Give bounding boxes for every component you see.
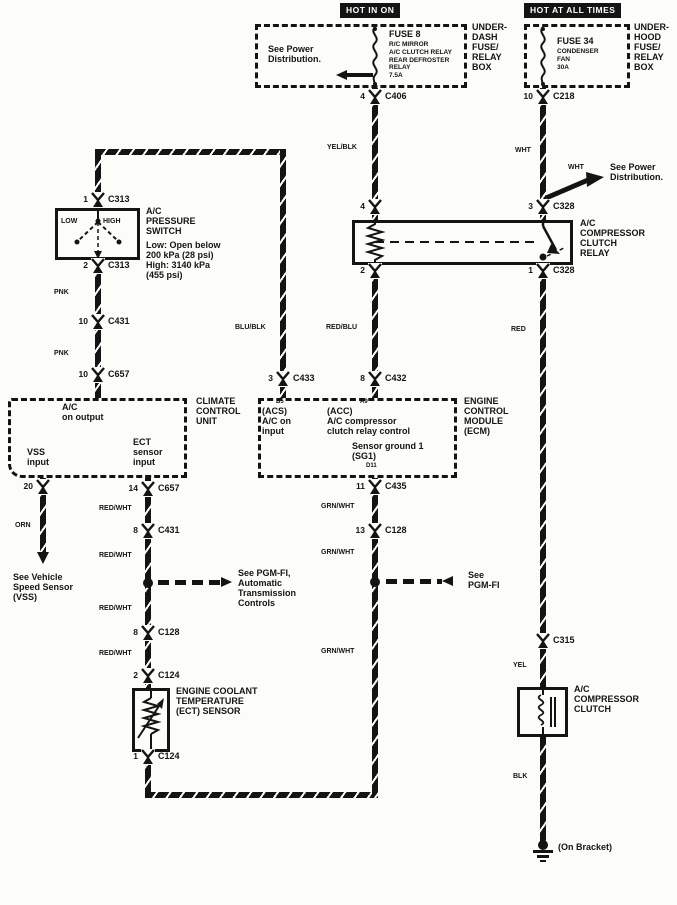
- connector-c432: 8C432: [368, 371, 382, 387]
- wire-label-pnk-2: PNK: [54, 350, 69, 358]
- pgmfi-dash-arrow: [386, 579, 442, 584]
- connector-c431: 8C431: [141, 523, 155, 539]
- connector-pin: 3: [268, 373, 273, 383]
- ect-sensor-internals: [132, 688, 170, 752]
- fuse8-branch-bar: [347, 73, 373, 77]
- wire-label-redblu: RED/BLU: [326, 324, 357, 332]
- pressure-switch-internals: [55, 208, 140, 260]
- wire-label-wht-2: WHT: [568, 164, 584, 172]
- wire-label-grnwht-3: GRN/WHT: [321, 648, 354, 656]
- connector-pin: 11: [356, 481, 365, 491]
- see-pgmfi-note: See PGM-FI: [468, 570, 500, 590]
- wire-yel-segment: [540, 645, 546, 687]
- connector-pin: 13: [356, 525, 365, 535]
- connector-name: C124: [158, 751, 180, 761]
- wire-label-redwht-2: RED/WHT: [99, 552, 132, 560]
- wire-red-column: [540, 263, 546, 647]
- connector-name: C128: [385, 525, 407, 535]
- wire-label-yel: YEL: [513, 662, 527, 670]
- connector-name: C128: [158, 627, 180, 637]
- junction-dot-redwht: [143, 578, 153, 588]
- hot-in-on-tag: HOT IN ON: [340, 3, 400, 18]
- wire-blk-segment: [540, 737, 546, 843]
- pgmfi-at-dash-arrow: [158, 580, 220, 585]
- wire-label-grnwht-2: GRN/WHT: [321, 549, 354, 557]
- vss-arrow: [37, 552, 49, 564]
- fuse34-detail: CONDENSER FAN 30A: [557, 48, 599, 71]
- wire-label-yelblk: YEL/BLK: [327, 144, 357, 152]
- connector-pin: 14: [129, 483, 138, 493]
- ground-dome: [538, 840, 548, 850]
- pressure-switch-label: A/C PRESSURE SWITCH: [146, 206, 196, 236]
- connector-name: C432: [385, 373, 407, 383]
- fuse34-symbol: [536, 27, 550, 87]
- fuse8-title: FUSE 8: [389, 29, 421, 39]
- connector-c435: 11C435: [368, 479, 382, 495]
- wire-label-blublk: BLU/BLK: [235, 324, 266, 332]
- wire-label-redwht-1: RED/WHT: [99, 505, 132, 513]
- relay-internals: [352, 220, 573, 265]
- ccu-ac-on-output-label: A/C on output: [62, 402, 103, 422]
- wht-branch-arrow: [546, 168, 608, 202]
- connector-pin: 1: [528, 265, 533, 275]
- connector-c128: 8C128: [141, 625, 155, 641]
- connector-name: C431: [158, 525, 180, 535]
- wire-top-horizontal: [95, 149, 286, 155]
- compressor-clutch-label: A/C COMPRESSOR CLUTCH: [574, 684, 639, 714]
- ccu-ect-input-label: ECT sensor input: [133, 437, 163, 467]
- connector-pin: 1: [133, 751, 138, 761]
- connector-pin: 2: [133, 670, 138, 680]
- connector-name: C313: [108, 260, 130, 270]
- connector-c328: 1C328: [536, 263, 550, 279]
- see-power-distribution-note-2: See Power Distribution.: [610, 162, 663, 182]
- connector-name: C431: [108, 316, 130, 326]
- connector-c315: C315: [536, 633, 550, 649]
- wire-label-wht-1: WHT: [515, 147, 531, 155]
- connector-name: C406: [385, 91, 407, 101]
- connector-pin: 3: [528, 201, 533, 211]
- ecm-sg-pin: D11: [366, 463, 377, 470]
- connector-name: C433: [293, 373, 315, 383]
- wire-label-redwht-3: RED/WHT: [99, 605, 132, 613]
- wire-bottom-horizontal: [145, 792, 378, 798]
- wire-label-pnk-1: PNK: [54, 289, 69, 297]
- see-power-distribution-note: See Power Distribution.: [268, 44, 321, 64]
- connector-pin: 2: [83, 260, 88, 270]
- pressure-switch-low-label: LOW: [61, 218, 77, 226]
- ground-bar-3: [540, 860, 546, 862]
- connector-name: C218: [553, 91, 575, 101]
- wire-label-grnwht-1: GRN/WHT: [321, 503, 354, 511]
- underhood-box-label: UNDER- HOOD FUSE/ RELAY BOX: [634, 22, 669, 72]
- ecm-label: ENGINE CONTROL MODULE (ECM): [464, 396, 509, 436]
- connector-pin: 20: [24, 481, 33, 491]
- wire-label-redwht-4: RED/WHT: [99, 650, 132, 658]
- connector-name: C315: [553, 635, 575, 645]
- connector-name: C435: [385, 481, 407, 491]
- connector-pin: 4: [360, 91, 365, 101]
- underdash-box-label: UNDER- DASH FUSE/ RELAY BOX: [472, 22, 507, 72]
- connector-c313: 1C313: [91, 192, 105, 208]
- connector-c128: 13C128: [368, 523, 382, 539]
- wire-label-red: RED: [511, 326, 526, 334]
- connector-pin: 10: [524, 91, 533, 101]
- connector-name: C328: [553, 265, 575, 275]
- ccu-label: CLIMATE CONTROL UNIT: [196, 396, 241, 426]
- wire-label-blk: BLK: [513, 773, 527, 781]
- connector-c328: 3C328: [536, 199, 550, 215]
- wire-label-orn: ORN: [15, 522, 31, 530]
- see-vss-note: See Vehicle Speed Sensor (VSS): [13, 572, 73, 602]
- ground-bar-2: [537, 855, 549, 858]
- junction-dot-grnwht: [370, 577, 380, 587]
- connector-name: C328: [553, 201, 575, 211]
- connector-pin: 8: [360, 373, 365, 383]
- wiring-diagram: HOT IN ON HOT AT ALL TIMES See Power Dis…: [0, 0, 677, 905]
- ect-sensor-label: ENGINE COOLANT TEMPERATURE (ECT) SENSOR: [176, 686, 258, 716]
- connector-pin-2: 2: [368, 263, 382, 279]
- connector-c433: 3C433: [276, 371, 290, 387]
- connector-pin: 8: [133, 627, 138, 637]
- connector-pin-4: 4: [368, 199, 382, 215]
- connector-pin: 2: [360, 265, 365, 275]
- connector-pin: 4: [360, 201, 365, 211]
- connector-pin: 10: [79, 369, 88, 379]
- connector-pin: 10: [79, 316, 88, 326]
- connector-c218: 10C218: [536, 89, 550, 105]
- connector-c431: 10C431: [91, 314, 105, 330]
- connector-name: C124: [158, 670, 180, 680]
- connector-c657: 14C657: [141, 481, 155, 497]
- ccu-vss-input-label: VSS input: [27, 447, 49, 467]
- see-pgmfi-at-note: See PGM-FI, Automatic Transmission Contr…: [238, 568, 296, 608]
- connector-c313: 2C313: [91, 258, 105, 274]
- ecm-sensor-ground-label: Sensor ground 1 (SG1): [352, 441, 424, 461]
- ground-bar-1: [533, 850, 553, 853]
- pgmfi-arrowhead: [442, 576, 453, 586]
- on-bracket-label: (On Bracket): [558, 842, 612, 852]
- wire-blublk-column: [280, 149, 286, 398]
- fuse8-symbol: [368, 27, 382, 87]
- relay-label: A/C COMPRESSOR CLUTCH RELAY: [580, 218, 645, 258]
- connector-c657: 10C657: [91, 367, 105, 383]
- ecm-acs-label: (ACS) A/C on input: [262, 406, 291, 436]
- ecm-acc-pin: A9: [360, 399, 368, 406]
- connector-name: C657: [158, 483, 180, 493]
- connector-pin: 8: [133, 525, 138, 535]
- fuse8-branch-arrow: [336, 70, 347, 80]
- connector-c406: 4C406: [368, 89, 382, 105]
- pressure-switch-high-label: HIGH: [103, 218, 121, 226]
- connector-name: C313: [108, 194, 130, 204]
- pgmfi-at-arrowhead: [221, 577, 232, 587]
- hot-at-all-times-tag: HOT AT ALL TIMES: [524, 3, 621, 18]
- fuse8-detail: R/C MIRROR A/C CLUTCH RELAY REAR DEFROST…: [389, 41, 452, 80]
- connector-c124: 2C124: [141, 668, 155, 684]
- connector-pin: 1: [83, 194, 88, 204]
- connector-c124: 1C124: [141, 749, 155, 765]
- fuse34-title: FUSE 34: [557, 36, 594, 46]
- compressor-clutch-internals: [517, 687, 568, 737]
- ecm-acc-label: (ACC) A/C compressor clutch relay contro…: [327, 406, 410, 436]
- ecm-acs-pin: B5: [276, 399, 284, 406]
- pressure-switch-detail: Low: Open below 200 kPa (28 psi) High: 3…: [146, 240, 221, 280]
- connector-pin-20: 20: [36, 479, 50, 495]
- connector-name: C657: [108, 369, 130, 379]
